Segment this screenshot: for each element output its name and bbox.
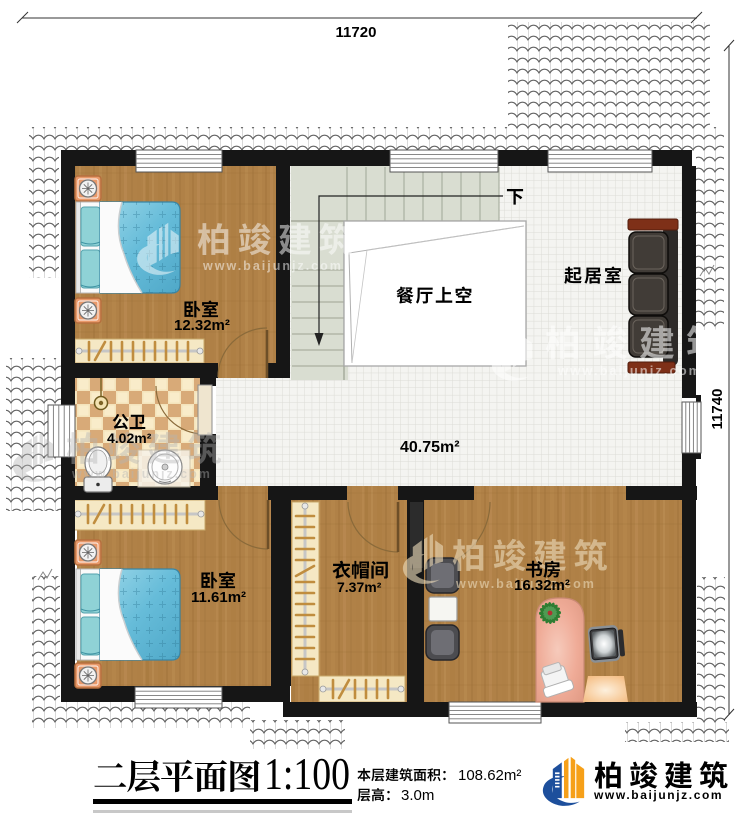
svg-text:40.75m²: 40.75m²: [400, 439, 460, 456]
svg-text:www.baijunjz.com: www.baijunjz.com: [557, 363, 702, 378]
svg-text:www.baijunjz.com: www.baijunjz.com: [71, 467, 212, 481]
svg-text:108.62m²: 108.62m²: [458, 767, 521, 784]
svg-text:11.61m²: 11.61m²: [191, 589, 246, 606]
svg-text:www.baijunjz.com: www.baijunjz.com: [202, 259, 343, 273]
svg-text:3.0m: 3.0m: [401, 787, 434, 804]
svg-text:1:100: 1:100: [264, 748, 350, 799]
svg-text:12.32m²: 12.32m²: [174, 317, 230, 334]
svg-text:11720: 11720: [336, 24, 377, 41]
svg-text:11740: 11740: [709, 389, 726, 430]
svg-text:www.baijunjz.com: www.baijunjz.com: [593, 788, 723, 802]
svg-text:16.32m²: 16.32m²: [514, 577, 570, 594]
svg-text:4.02m²: 4.02m²: [107, 430, 152, 446]
svg-text:7.37m²: 7.37m²: [337, 579, 382, 595]
